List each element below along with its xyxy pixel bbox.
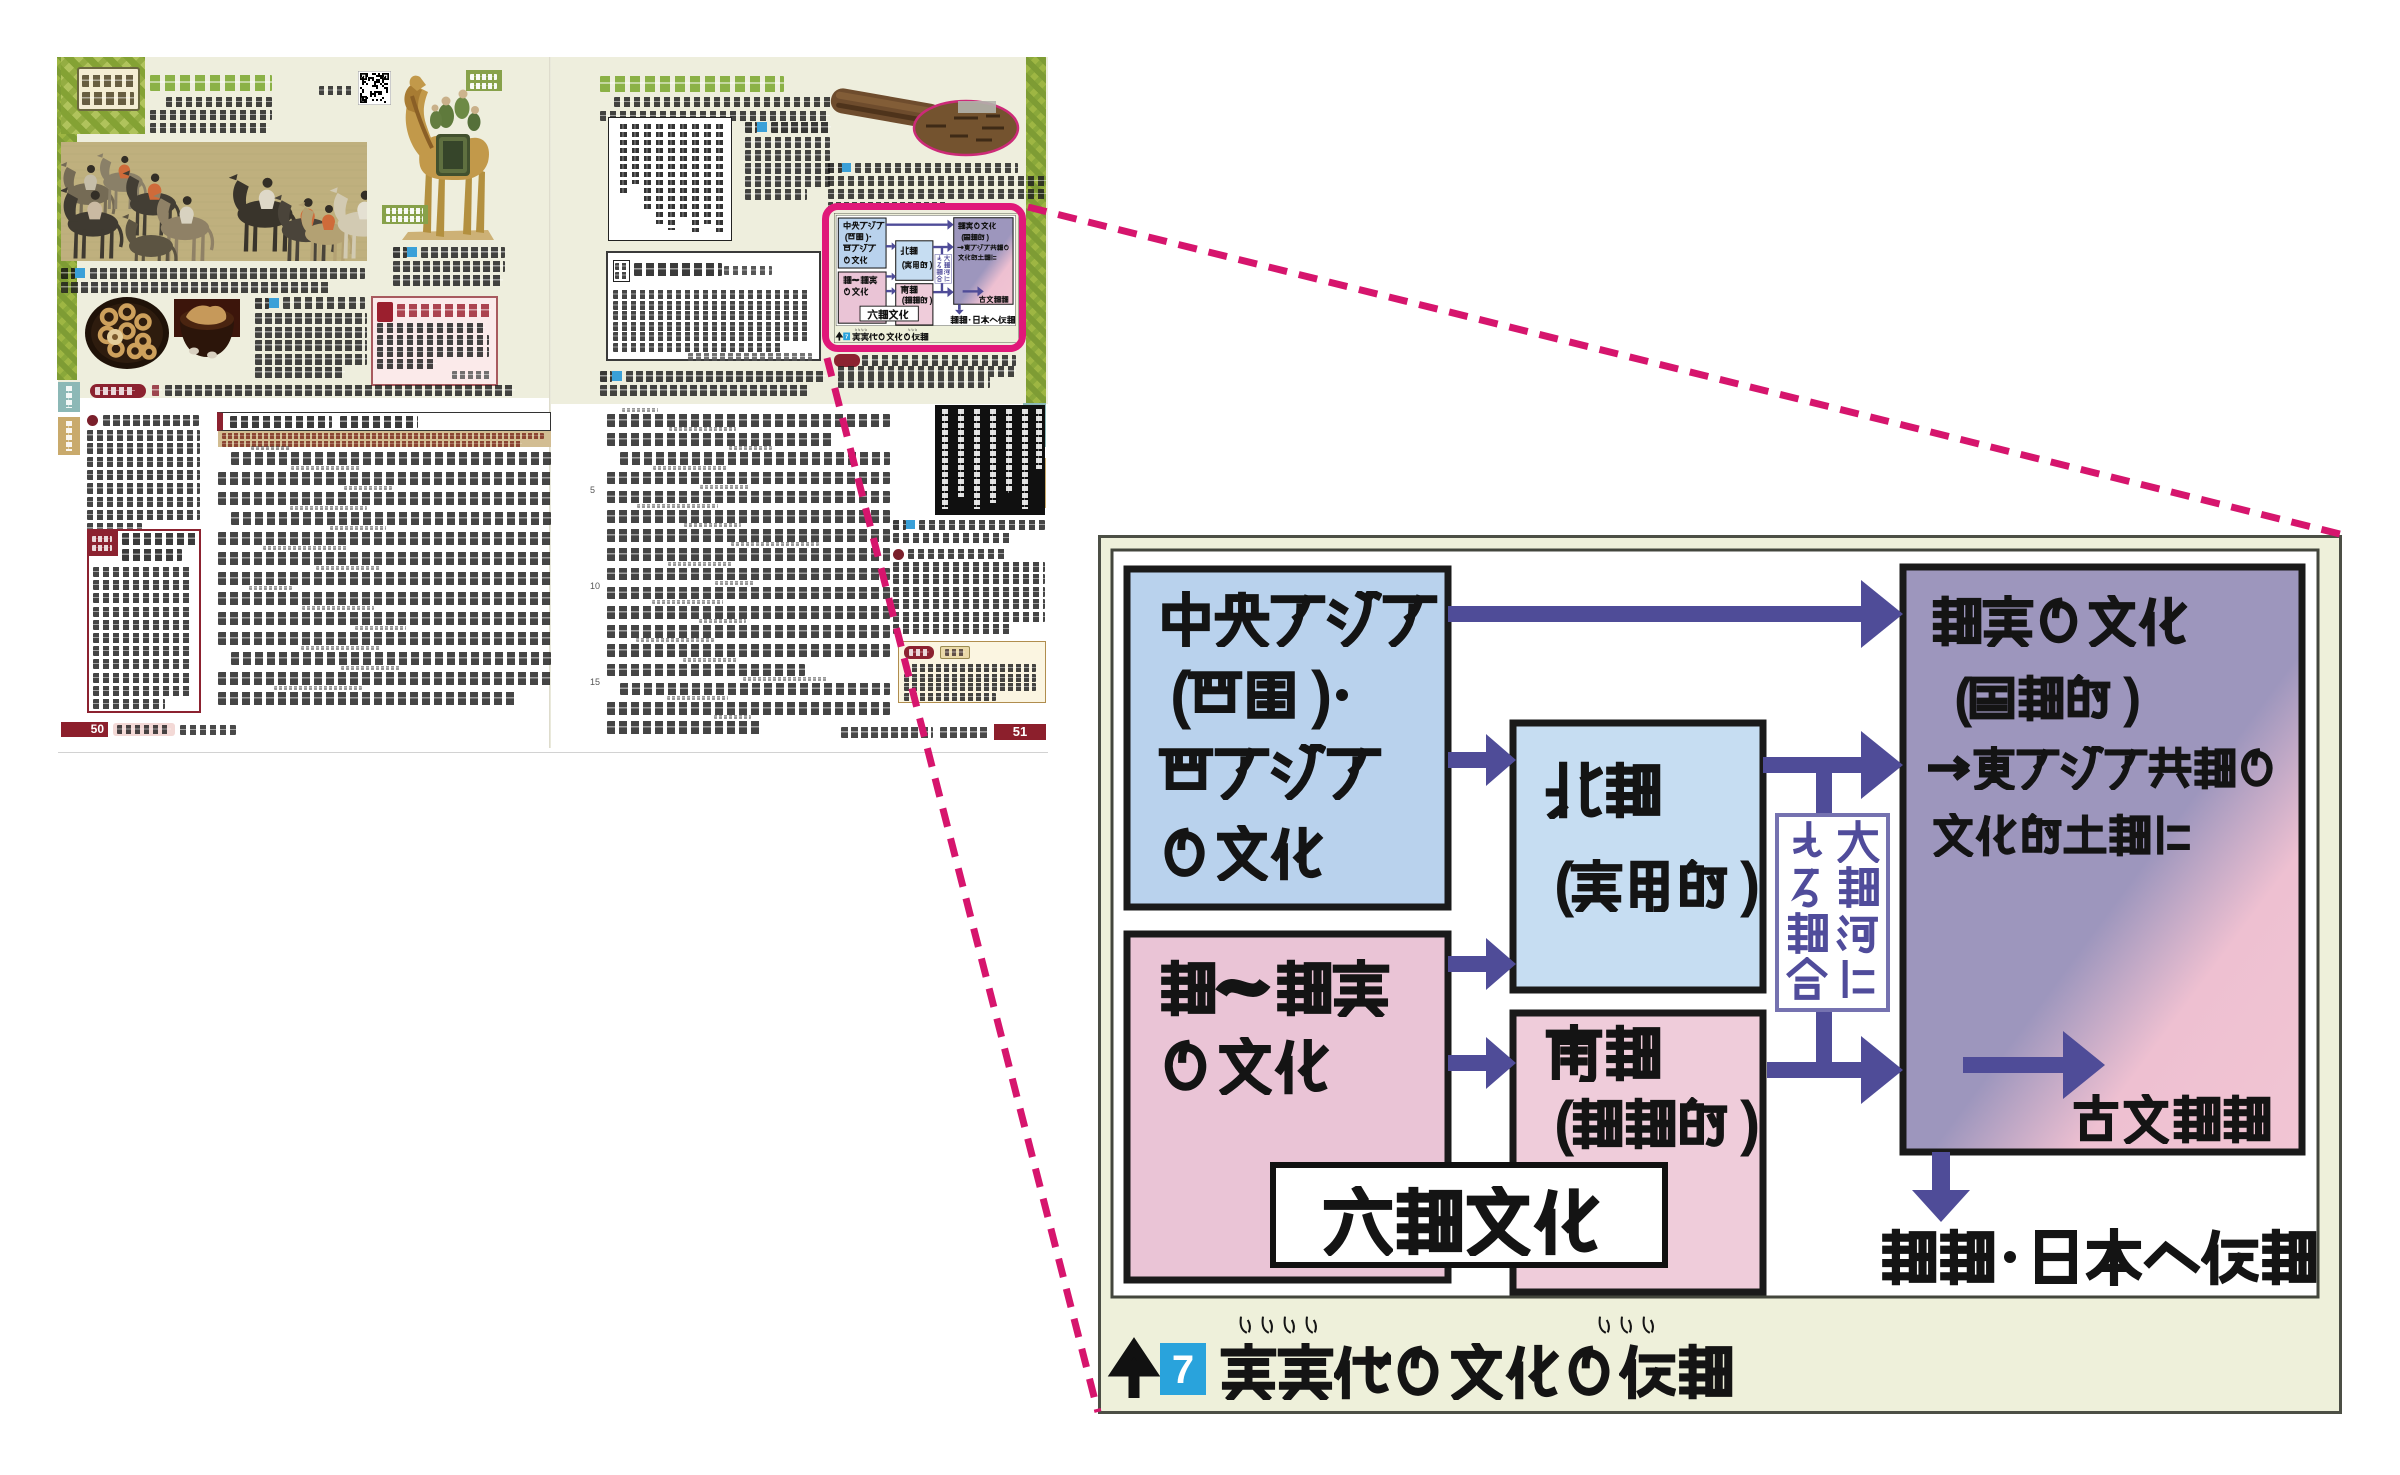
svg-text:): ) xyxy=(2123,666,2141,728)
svg-text:): ) xyxy=(1311,658,1332,730)
svg-text:): ) xyxy=(1740,850,1760,918)
svg-text:(: ( xyxy=(1554,850,1575,918)
svg-text:): ) xyxy=(1740,1089,1760,1157)
svg-text:7: 7 xyxy=(1172,1348,1194,1392)
svg-text:(: ( xyxy=(1170,658,1192,730)
svg-text:(: ( xyxy=(1554,1089,1575,1157)
